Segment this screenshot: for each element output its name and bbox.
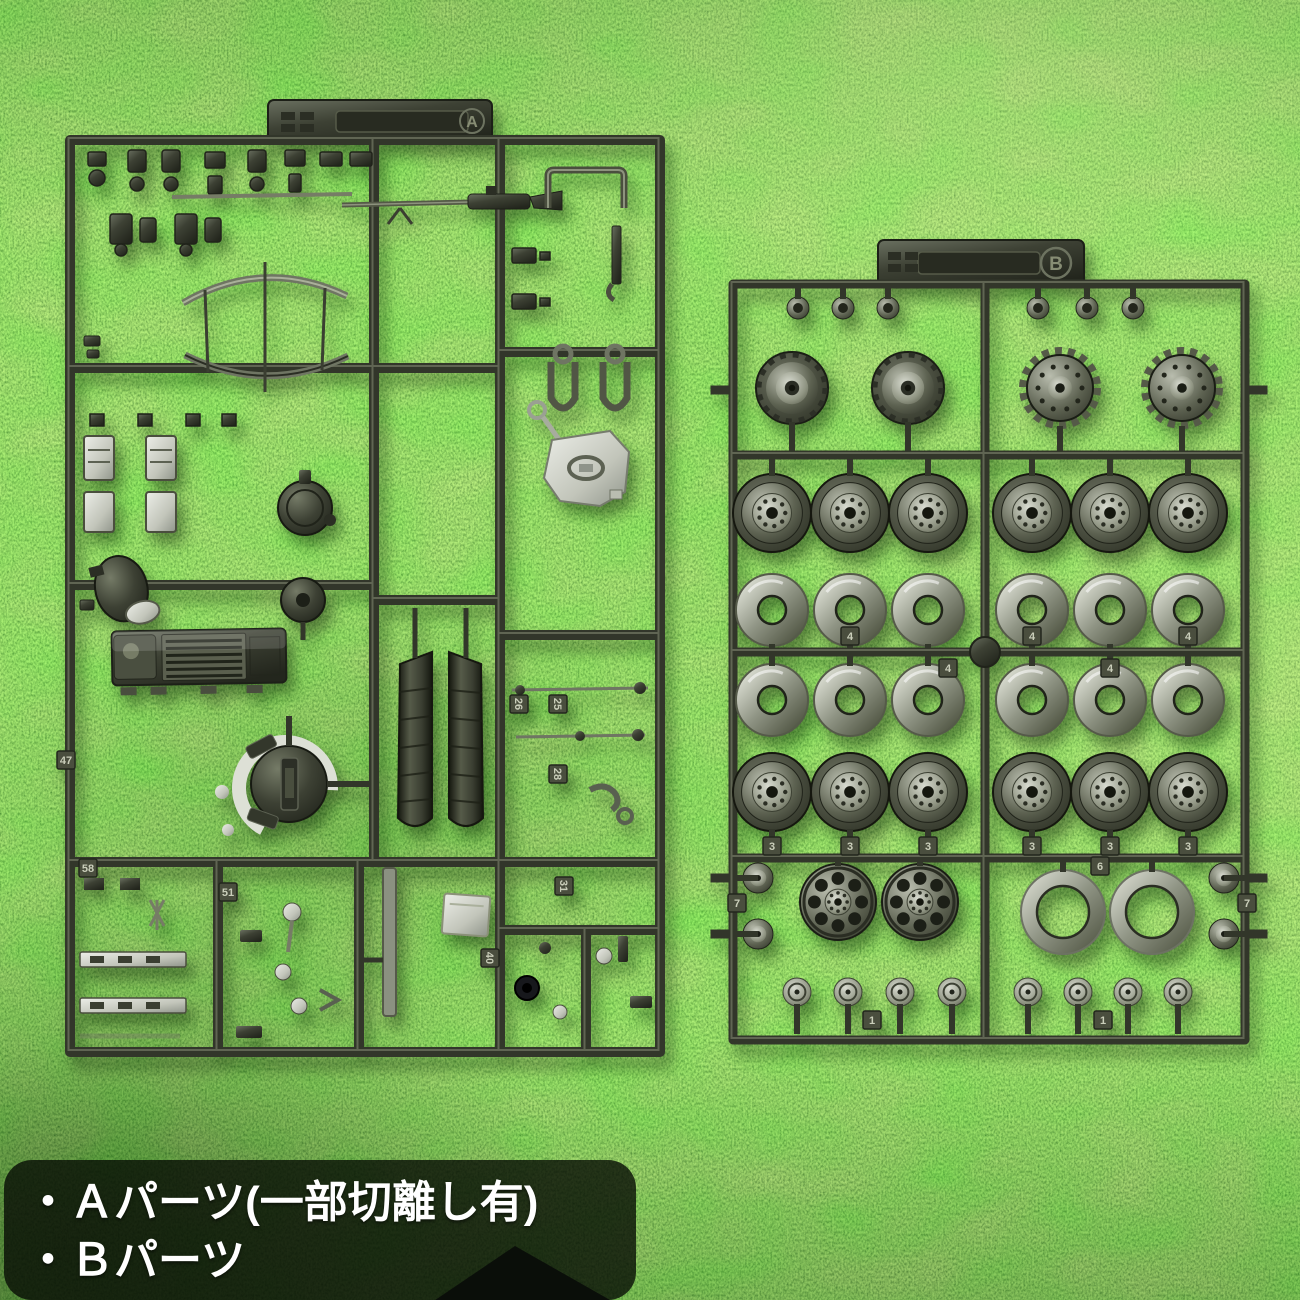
svg-text:4: 4: [1185, 631, 1192, 643]
svg-text:3: 3: [769, 841, 775, 853]
svg-text:3: 3: [1029, 841, 1035, 853]
svg-text:4: 4: [945, 663, 952, 675]
wheel-row-dish: [736, 664, 1224, 736]
caption-line-1: ・Ａパーツ(一部切離し有): [26, 1174, 612, 1232]
wheel-row-sprocket_outer: [1023, 351, 1219, 425]
wheel-row-sprocket_inner: [756, 352, 944, 424]
svg-text:3: 3: [1185, 841, 1191, 853]
sprue-b: B 4444433333367711: [0, 0, 1300, 1300]
wheel-row-spoked: [800, 864, 958, 940]
svg-text:3: 3: [1107, 841, 1113, 853]
svg-text:1: 1: [1100, 1015, 1106, 1027]
wheel-row-dish: [736, 574, 1224, 646]
sprue-b-tab: B: [878, 240, 1084, 286]
svg-text:3: 3: [847, 841, 853, 853]
injection-gate-sphere: [970, 637, 1000, 667]
caption-line-2: ・Ｂパーツ: [26, 1232, 612, 1290]
svg-text:1: 1: [869, 1015, 875, 1027]
svg-text:6: 6: [1097, 861, 1103, 873]
wheel-row-roadwheel: [733, 753, 1227, 831]
svg-text:4: 4: [847, 631, 854, 643]
wheel-row-roadwheel: [733, 474, 1227, 552]
svg-text:4: 4: [1029, 631, 1036, 643]
svg-text:7: 7: [734, 898, 740, 910]
caption-overlay: ・Ａパーツ(一部切離し有) ・Ｂパーツ: [4, 1160, 636, 1300]
wheel-row-bigring: [1021, 870, 1194, 954]
svg-text:7: 7: [1244, 898, 1250, 910]
wheel-row-cap: [787, 297, 1144, 319]
svg-text:3: 3: [925, 841, 931, 853]
sprue-b-label: B: [1049, 254, 1063, 275]
photo-stage: A: [0, 0, 1300, 1300]
svg-text:4: 4: [1107, 663, 1114, 675]
